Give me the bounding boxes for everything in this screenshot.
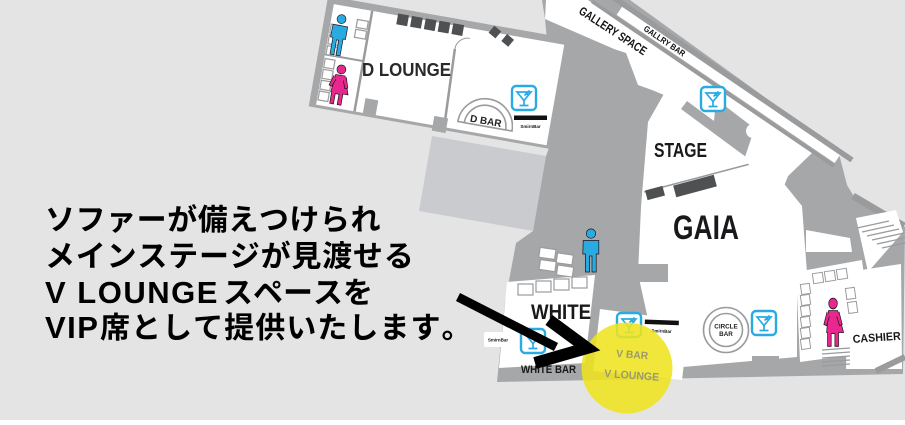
svg-text:CIRCLE: CIRCLE [714, 324, 737, 331]
svg-text:SmirnBar: SmirnBar [520, 124, 541, 129]
svg-text:SmirnBar: SmirnBar [488, 338, 509, 343]
svg-text:WHITE BAR: WHITE BAR [521, 364, 576, 376]
svg-text:STAGE: STAGE [654, 140, 707, 162]
svg-text:V BAR: V BAR [616, 348, 649, 362]
svg-text:V LOUNGE: V LOUNGE [45, 275, 219, 310]
svg-text:D LOUNGE: D LOUNGE [362, 60, 451, 80]
svg-text:BAR: BAR [719, 331, 733, 338]
svg-text:VIP: VIP [45, 310, 99, 345]
svg-text:GAIA: GAIA [673, 209, 739, 247]
svg-text:WHITE: WHITE [531, 301, 591, 324]
